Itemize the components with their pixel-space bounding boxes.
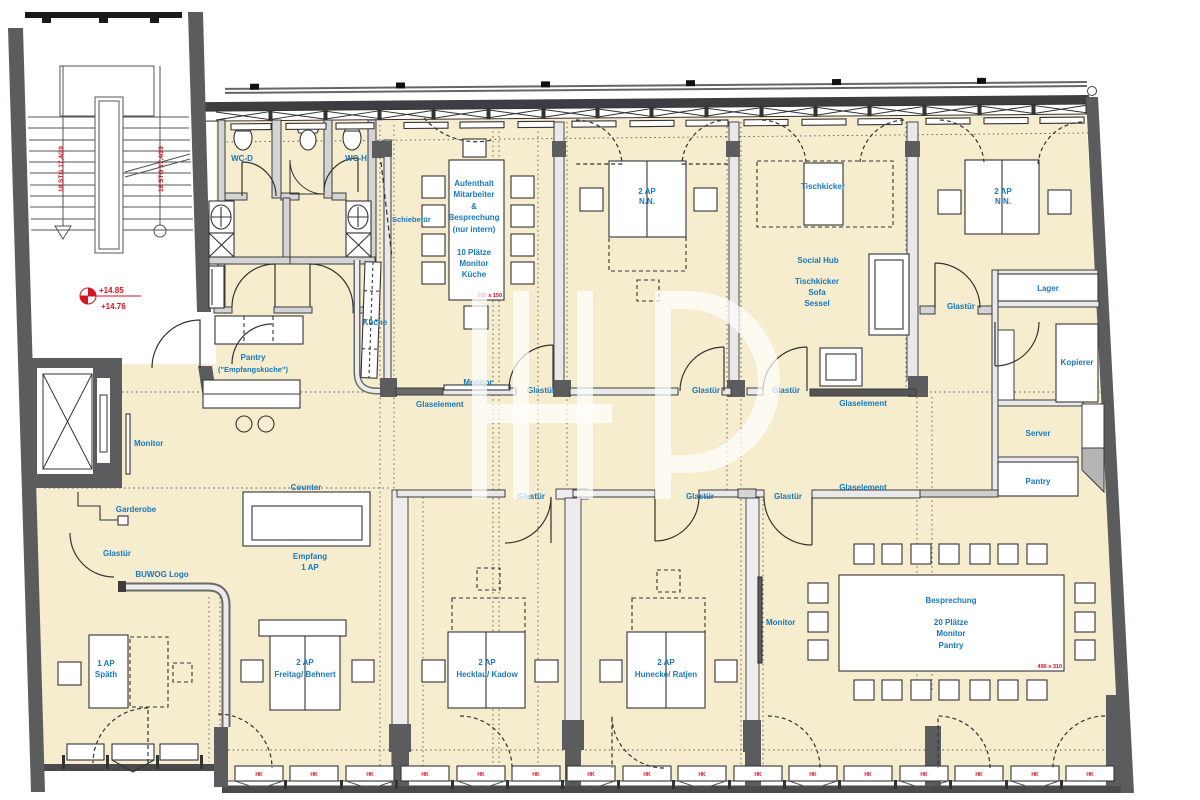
svg-text:Freitag/ Behnert: Freitag/ Behnert (274, 670, 336, 679)
svg-text:Glastür: Glastür (527, 386, 555, 395)
svg-text:HK: HK (809, 772, 817, 778)
svg-text:Sofa: Sofa (808, 288, 826, 297)
svg-text:Lager: Lager (1037, 284, 1059, 293)
svg-text:Späth: Späth (95, 670, 117, 679)
svg-text:Aufenthalt: Aufenthalt (454, 179, 494, 188)
svg-text:HK: HK (532, 772, 540, 778)
svg-text:HK: HK (698, 772, 706, 778)
svg-text:Kopierer: Kopierer (1061, 358, 1094, 367)
svg-text:N.N.: N.N. (639, 197, 655, 206)
svg-text:HK: HK (1086, 772, 1094, 778)
svg-text:18 STG 17,4/29: 18 STG 17,4/29 (58, 146, 65, 192)
svg-text:2 AP: 2 AP (657, 658, 675, 667)
svg-text:Pantry: Pantry (939, 641, 964, 650)
svg-text:20 Plätze: 20 Plätze (934, 618, 969, 627)
svg-text:Garderobe: Garderobe (116, 505, 157, 514)
svg-text:HK: HK (1031, 772, 1039, 778)
svg-text:Counter: Counter (291, 483, 322, 492)
svg-text:HK: HK (366, 772, 374, 778)
svg-text:HK: HK (310, 772, 318, 778)
svg-text:Tischkicker: Tischkicker (795, 277, 839, 286)
svg-text:2 AP: 2 AP (994, 187, 1012, 196)
svg-text:Empfang: Empfang (293, 552, 327, 561)
svg-text:Monitor: Monitor (134, 439, 163, 448)
svg-text:BUWOG Logo: BUWOG Logo (135, 570, 188, 579)
svg-text:1 AP: 1 AP (301, 563, 319, 572)
svg-text:2 AP: 2 AP (638, 187, 656, 196)
svg-text:Besprechung: Besprechung (925, 596, 976, 605)
svg-text:Glastür: Glastür (947, 302, 975, 311)
svg-text:Monitor: Monitor (936, 629, 965, 638)
svg-text:Glastür: Glastür (692, 386, 720, 395)
svg-text:Monitor: Monitor (459, 259, 488, 268)
svg-text:HK: HK (255, 772, 263, 778)
svg-text:Hecklau/ Kadow: Hecklau/ Kadow (456, 670, 518, 679)
svg-text:Tischkicker: Tischkicker (801, 182, 845, 191)
svg-text:Besprechung: Besprechung (448, 213, 499, 222)
svg-text:490 x 310: 490 x 310 (1038, 664, 1062, 670)
svg-text:10 Plätze: 10 Plätze (457, 248, 492, 257)
svg-text:HK: HK (477, 772, 485, 778)
svg-text:HK: HK (754, 772, 762, 778)
svg-text:Glastür: Glastür (774, 492, 802, 501)
svg-text:18 STG 17,4/29: 18 STG 17,4/29 (158, 146, 165, 192)
svg-text:Hunecke/ Ratjen: Hunecke/ Ratjen (635, 670, 697, 679)
svg-text:1 AP: 1 AP (97, 659, 115, 668)
svg-text:Glaselement: Glaselement (839, 399, 887, 408)
svg-text:2 AP: 2 AP (478, 658, 496, 667)
svg-text:Monitor: Monitor (766, 618, 795, 627)
svg-text:N.N.: N.N. (995, 197, 1011, 206)
svg-text:Schiebetür: Schiebetür (392, 215, 431, 224)
svg-text:HK: HK (643, 772, 651, 778)
svg-text:("Empfangsküche"): ("Empfangsküche") (218, 365, 289, 374)
svg-text:+14.76: +14.76 (101, 302, 126, 311)
svg-text:HK: HK (920, 772, 928, 778)
svg-text:Glastür: Glastür (686, 492, 714, 501)
svg-text:&: & (471, 202, 477, 211)
svg-text:Küche: Küche (462, 270, 487, 279)
svg-text:Social Hub: Social Hub (797, 256, 838, 265)
svg-text:Küche: Küche (363, 318, 388, 327)
svg-text:HK: HK (864, 772, 872, 778)
svg-text:Glaselement: Glaselement (416, 400, 464, 409)
svg-text:Mitarbeiter: Mitarbeiter (454, 190, 495, 199)
svg-text:Glastür: Glastür (103, 549, 131, 558)
svg-text:(nur intern): (nur intern) (453, 225, 496, 234)
svg-text:HK: HK (975, 772, 983, 778)
svg-text:Sessel: Sessel (804, 299, 829, 308)
svg-text:2 AP: 2 AP (296, 658, 314, 667)
svg-text:+14.85: +14.85 (99, 286, 124, 295)
svg-text:Pantry: Pantry (1026, 477, 1051, 486)
svg-text:Glaselement: Glaselement (839, 483, 887, 492)
svg-text:HK: HK (587, 772, 595, 778)
svg-text:WC-D: WC-D (231, 154, 253, 163)
svg-text:Pantry: Pantry (241, 353, 266, 362)
svg-text:WC-H: WC-H (345, 154, 367, 163)
svg-text:Server: Server (1026, 429, 1051, 438)
svg-text:HK: HK (421, 772, 429, 778)
